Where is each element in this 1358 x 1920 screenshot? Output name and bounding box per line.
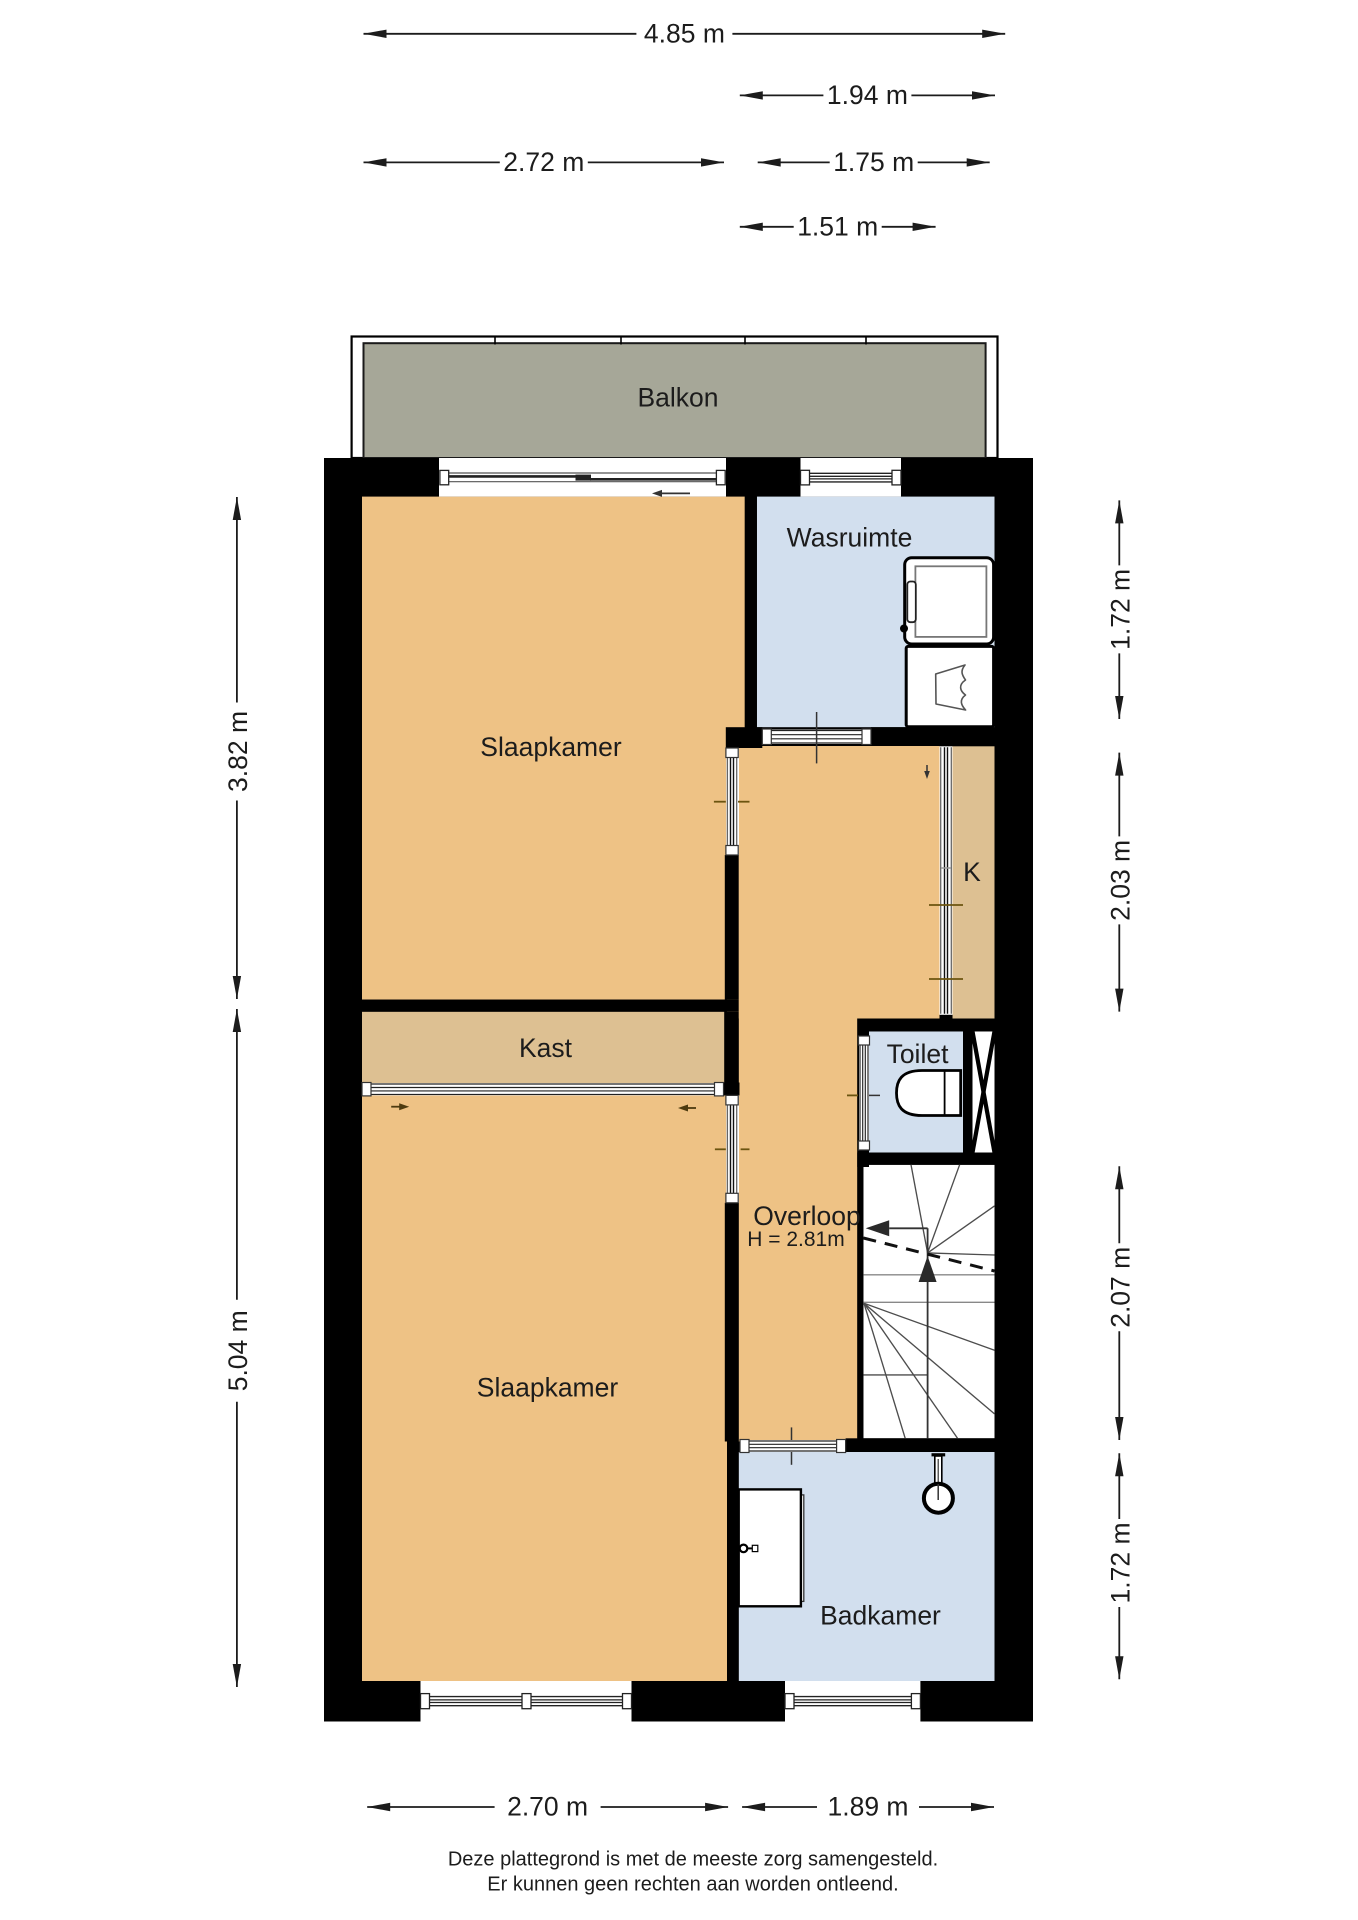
svg-text:Kast: Kast <box>519 1033 573 1063</box>
svg-text:4.85 m: 4.85 m <box>644 18 725 48</box>
svg-text:H = 2.81m: H = 2.81m <box>747 1228 844 1251</box>
svg-text:Balkon: Balkon <box>637 383 718 413</box>
svg-text:2.70 m: 2.70 m <box>507 1792 588 1822</box>
svg-text:1.89 m: 1.89 m <box>827 1792 908 1822</box>
svg-text:1.51 m: 1.51 m <box>797 211 878 241</box>
svg-text:1.75 m: 1.75 m <box>833 147 914 177</box>
svg-text:Deze plattegrond is met de mee: Deze plattegrond is met de meeste zorg s… <box>448 1849 938 1871</box>
svg-text:K: K <box>963 857 981 887</box>
svg-text:Overloop: Overloop <box>753 1201 861 1231</box>
svg-text:Slaapkamer: Slaapkamer <box>477 1373 619 1403</box>
svg-text:Er kunnen geen rechten aan wor: Er kunnen geen rechten aan worden ontlee… <box>487 1874 898 1896</box>
svg-text:2.03 m: 2.03 m <box>1105 840 1135 921</box>
svg-text:1.94 m: 1.94 m <box>827 80 908 110</box>
svg-text:2.07 m: 2.07 m <box>1105 1247 1135 1328</box>
svg-text:Badkamer: Badkamer <box>820 1601 941 1631</box>
svg-text:3.82 m: 3.82 m <box>223 711 253 792</box>
svg-text:Wasruimte: Wasruimte <box>787 523 913 553</box>
svg-text:1.72 m: 1.72 m <box>1105 1522 1135 1603</box>
svg-text:1.72 m: 1.72 m <box>1105 569 1135 650</box>
svg-text:5.04 m: 5.04 m <box>223 1310 253 1391</box>
svg-text:Slaapkamer: Slaapkamer <box>480 732 622 762</box>
svg-text:2.72 m: 2.72 m <box>503 147 584 177</box>
svg-text:Toilet: Toilet <box>887 1039 950 1069</box>
